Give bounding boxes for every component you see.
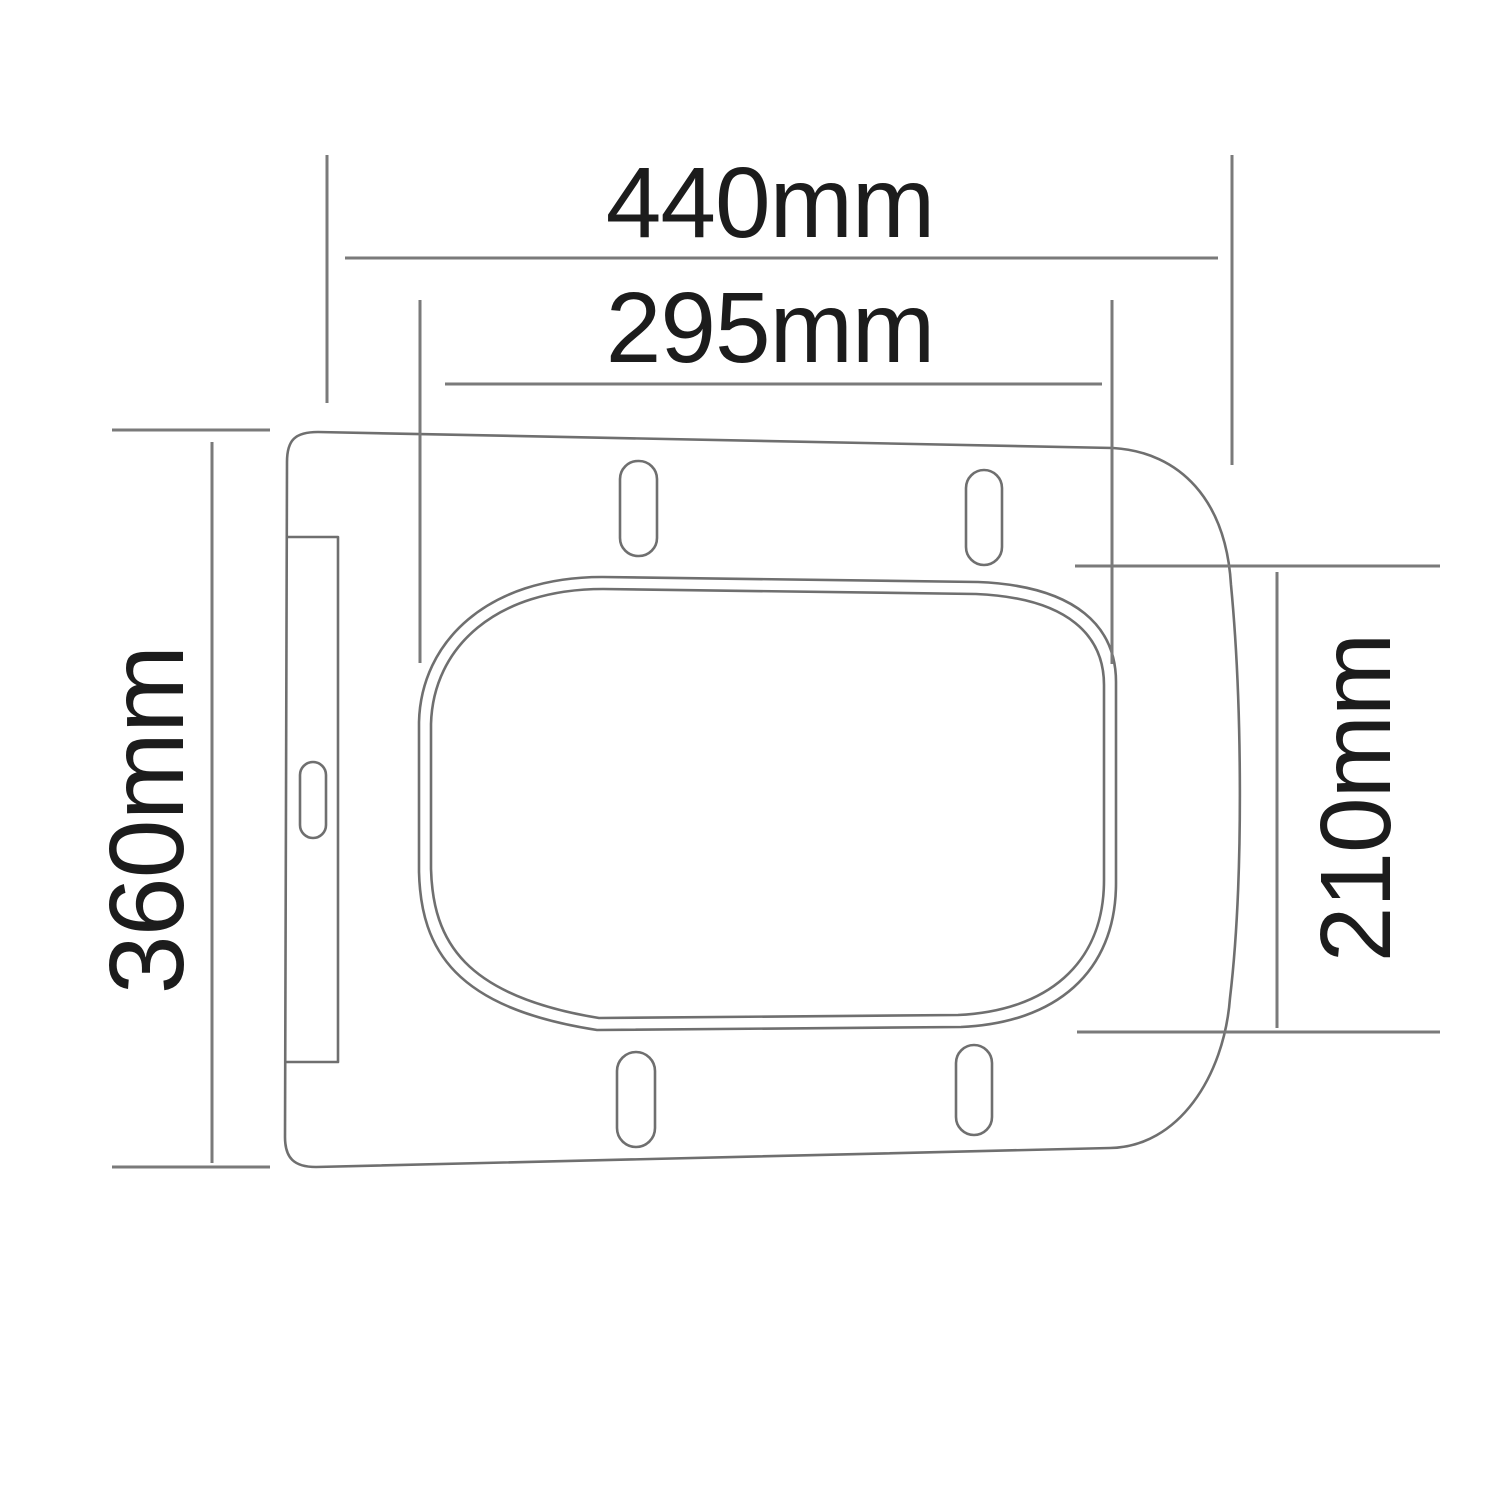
- label-outer-width: 440mm: [606, 147, 934, 259]
- hinge-slot: [300, 762, 326, 838]
- seat-outline-group: [285, 432, 1240, 1167]
- label-inner-depth: 210mm: [1300, 634, 1412, 962]
- slot-top-left: [620, 461, 657, 556]
- seat-opening-outer-ring: [419, 577, 1116, 1030]
- slot-top-right: [966, 470, 1002, 565]
- label-outer-depth: 360mm: [88, 646, 206, 994]
- seat-opening-inner-ring: [431, 589, 1104, 1018]
- slot-bottom-right: [956, 1045, 992, 1135]
- slot-bottom-left: [617, 1052, 655, 1147]
- toilet-seat-dimension-diagram: 440mm 295mm 360mm 210mm: [0, 0, 1500, 1500]
- technical-drawing-canvas: 440mm 295mm 360mm 210mm: [0, 0, 1500, 1500]
- label-inner-width: 295mm: [606, 272, 934, 384]
- seat-outer-outline: [285, 432, 1240, 1167]
- hinge-plate: [286, 537, 338, 1062]
